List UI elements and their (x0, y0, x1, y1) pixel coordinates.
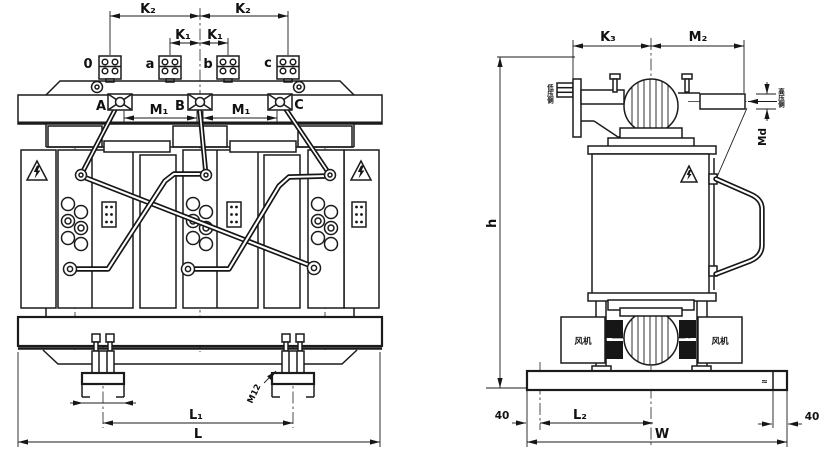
dim-m1-left: M₁ (150, 103, 169, 118)
tap-plate-2 (227, 202, 241, 227)
dim-k1-left: K₁ (175, 28, 191, 43)
hv-pad-A (108, 94, 132, 110)
bottom-fan-assembly: 风机 风机 (561, 293, 742, 372)
dim-l: L (194, 427, 202, 442)
hv-label-B: B (175, 99, 185, 114)
fan-label-right: 风机 (711, 336, 729, 347)
dim-l1: L₁ (189, 408, 203, 423)
tap-circles-phase-3 (312, 198, 338, 251)
dim-40-right: 40 (805, 411, 820, 423)
hv-pad-C (268, 94, 292, 110)
lv-label-b: b (203, 57, 212, 72)
hv-label-C: C (294, 98, 304, 113)
hv-outlet-label: 高压侧 (777, 88, 784, 108)
fan-label-left: 风机 (574, 336, 592, 347)
side-bottom-dimensions: 40 L₂ 40 W (495, 390, 820, 447)
dim-k2-right: K₂ (235, 2, 251, 17)
lv-label-a: a (146, 57, 155, 72)
lv-terminal-a (159, 56, 181, 82)
lv-terminal-blocks: 0 a b c (83, 56, 299, 82)
hv-pad-B (188, 94, 212, 110)
transformer-outline-drawing: K₂ K₂ K₁ K₁ (0, 0, 834, 458)
front-top-dimensions: K₂ K₂ K₁ K₁ (110, 2, 288, 55)
dim-w: W (655, 427, 669, 442)
left-outer-panel (21, 150, 56, 308)
tap-circles-phase-1 (62, 198, 88, 251)
lv-terminal-b (217, 56, 239, 82)
dim-k3: K₃ (600, 30, 616, 45)
dim-m12-label: M12 (246, 383, 264, 406)
dim-m2: M₂ (689, 30, 708, 45)
side-base: ≈ (527, 371, 787, 390)
lv-label-0: 0 (83, 57, 92, 72)
dim-l2: L₂ (573, 408, 587, 423)
dim-md: Md (757, 128, 769, 146)
hv-label-A: A (96, 99, 106, 114)
front-view: K₂ K₂ K₁ K₁ (18, 2, 382, 447)
lv-outlet-label: 低压侧 (546, 84, 553, 104)
base-mark: ≈ (761, 377, 768, 386)
side-body (592, 154, 762, 294)
dim-k2-left: K₂ (140, 2, 156, 17)
drawing-canvas: K₂ K₂ K₁ K₁ (0, 0, 834, 458)
dim-40-left: 40 (495, 410, 510, 422)
dim-m1-right: M₁ (232, 103, 251, 118)
dim-h: h (485, 219, 500, 228)
dim-k1-right: K₁ (207, 28, 223, 43)
bushing-turret (588, 74, 716, 154)
lv-label-c: c (264, 56, 272, 71)
lv-terminal-c (277, 56, 299, 82)
lv-terminal-0 (99, 56, 121, 82)
front-bottom-dimensions: L₁ L (18, 352, 380, 447)
tap-plate-3 (352, 202, 366, 227)
coil-phase-1 (58, 150, 133, 308)
tap-plate-1 (102, 202, 116, 227)
side-view: K₃ M₂ h (485, 30, 819, 448)
bottom-clamp (18, 308, 382, 364)
